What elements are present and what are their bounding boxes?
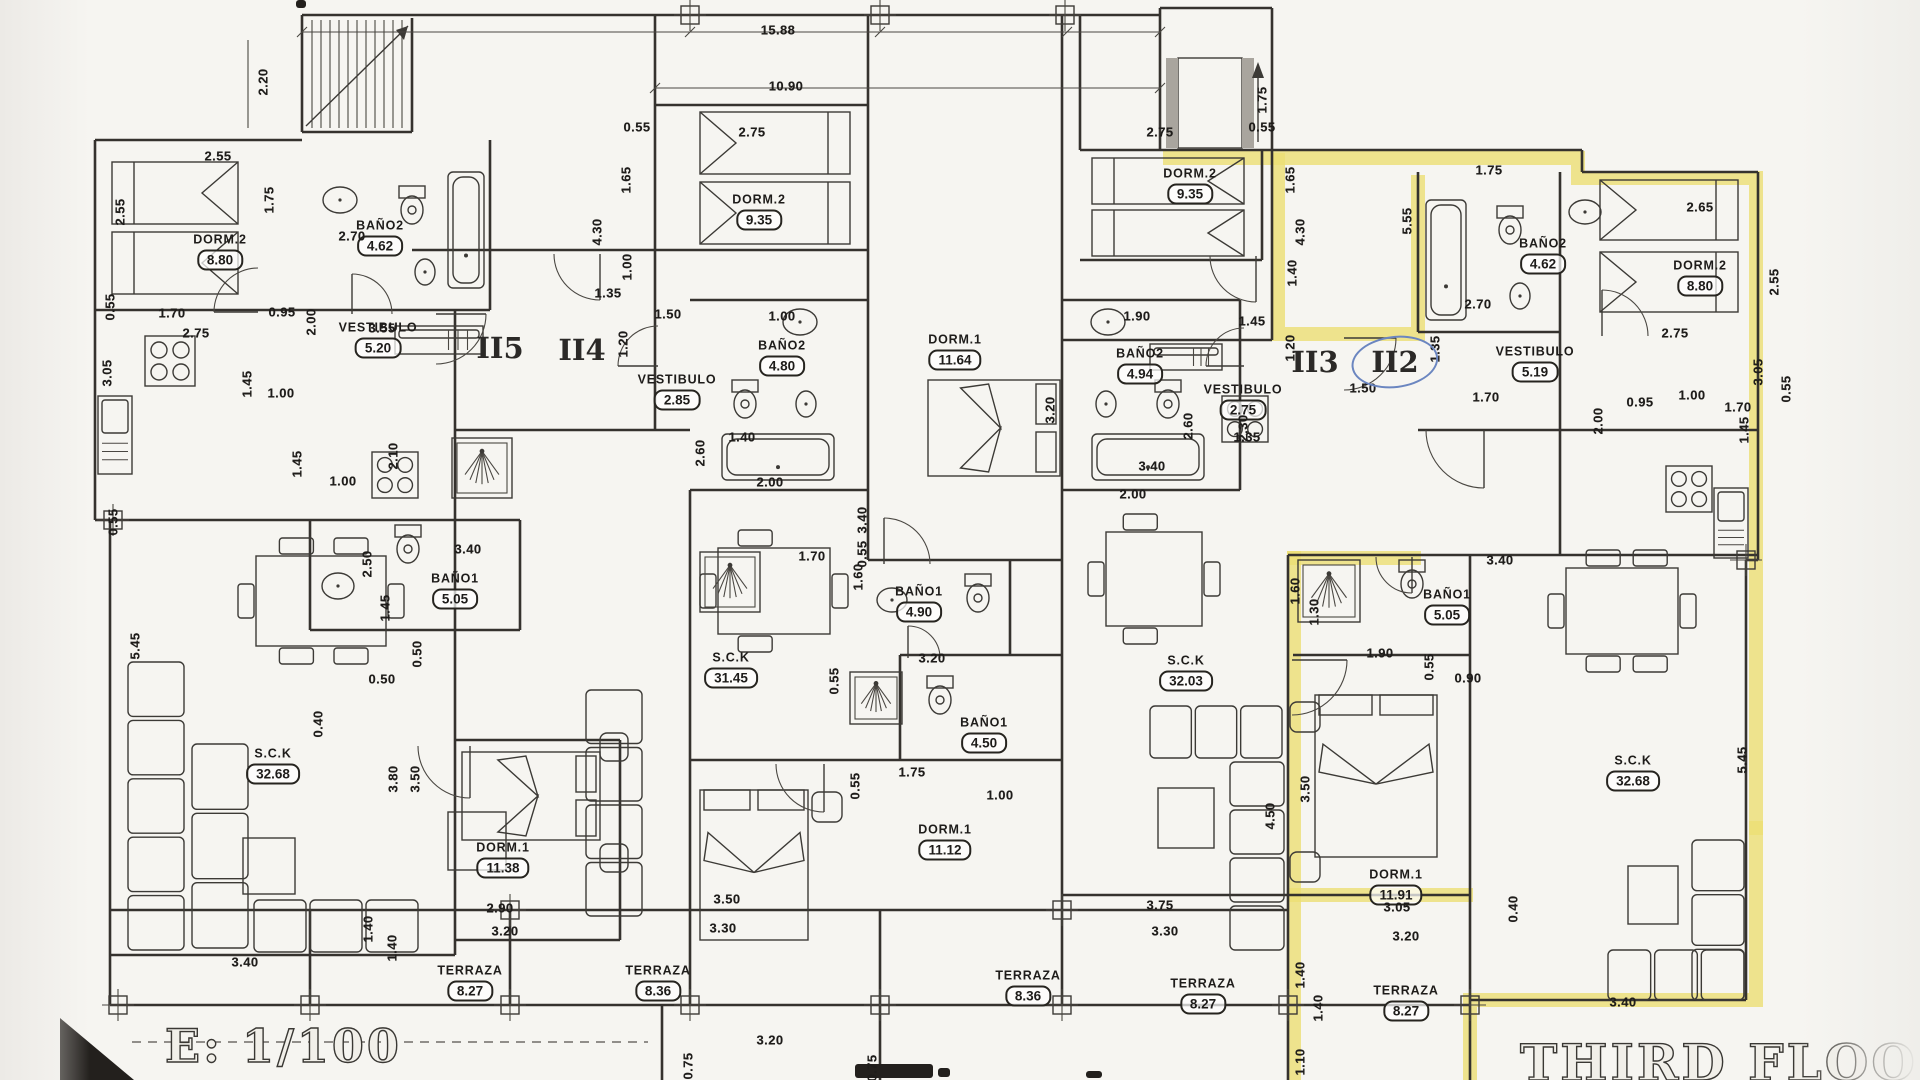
chair	[1548, 594, 1564, 628]
scan-artifact	[296, 0, 306, 8]
bathtub-drain	[464, 254, 468, 258]
scan-artifact	[855, 1064, 933, 1078]
bed-pillow	[1380, 695, 1433, 715]
stove-burner	[1692, 492, 1707, 507]
door-arc	[352, 274, 392, 314]
chair	[279, 538, 313, 554]
sofa-cushion	[586, 805, 642, 859]
chair	[700, 574, 716, 608]
furniture-layer	[98, 20, 1748, 1000]
stove-burner	[151, 364, 167, 380]
stove-burner	[1672, 472, 1687, 487]
elevator-jamb	[1242, 58, 1254, 148]
bathtub-inner	[453, 177, 479, 283]
walls-layer	[95, 8, 1758, 1080]
sink-basin	[1718, 492, 1744, 521]
bed-fan	[754, 833, 804, 873]
bed-pillow	[704, 790, 750, 810]
bed-pillow	[758, 790, 804, 810]
single-bed	[112, 162, 238, 224]
bed-fold	[700, 112, 736, 174]
bathtub	[1092, 434, 1204, 480]
bed-fan	[1319, 744, 1376, 784]
bed-fold	[1600, 180, 1636, 240]
chair	[1680, 594, 1696, 628]
bathtub-drain	[1146, 465, 1150, 469]
elevator-jamb	[1166, 58, 1178, 148]
bathtub	[722, 434, 834, 480]
stove-burner	[378, 458, 393, 473]
sofa-cushion	[1230, 810, 1284, 854]
chair	[238, 584, 254, 618]
drain	[804, 402, 807, 405]
stove	[1222, 396, 1268, 442]
stove-burner	[398, 458, 413, 473]
drain	[338, 198, 341, 201]
toilet-detail	[404, 545, 412, 553]
door-arc	[908, 626, 940, 658]
bed-fold	[1208, 210, 1244, 256]
sofa-cushion	[1150, 706, 1191, 758]
drain	[1106, 320, 1109, 323]
sofa-cushion	[1608, 950, 1651, 1000]
unit-highlight	[1278, 160, 1418, 334]
chair	[334, 648, 368, 664]
stove-burner	[378, 478, 393, 493]
chair	[388, 584, 404, 618]
elevator-cab	[1178, 58, 1242, 148]
unit-highlight	[1170, 158, 1756, 828]
bed-fold	[1600, 252, 1636, 312]
chair	[738, 636, 772, 652]
sofa-cushion	[586, 690, 642, 744]
shower-head	[1327, 571, 1332, 576]
door-arc	[1206, 328, 1244, 366]
double-bed	[1315, 695, 1437, 857]
chair	[1586, 656, 1620, 672]
bathtub-drain	[1444, 284, 1448, 288]
door-arc	[1210, 256, 1256, 302]
chair	[1123, 514, 1157, 530]
sofa-cushion	[128, 896, 184, 950]
shower-head	[728, 563, 733, 568]
toilet-detail	[408, 206, 416, 214]
stove-burner	[1672, 492, 1687, 507]
toilet-bowl	[397, 535, 419, 563]
single-bed	[1600, 252, 1738, 312]
coffee-table	[243, 838, 295, 894]
stove	[372, 452, 418, 498]
toilet-detail	[1164, 400, 1172, 408]
stove-burner	[173, 364, 189, 380]
highlight-layer	[1170, 158, 1756, 1078]
sofa-cushion	[128, 837, 184, 891]
chair	[279, 648, 313, 664]
door-arc	[1344, 338, 1396, 390]
sofa-cushion	[1230, 762, 1284, 806]
sink-basin	[102, 400, 128, 433]
chair	[1088, 562, 1104, 596]
double-bed	[462, 752, 600, 840]
stove	[1666, 466, 1712, 512]
armchair	[448, 812, 506, 870]
toilet-bowl	[734, 390, 756, 418]
sofa-cushion	[128, 779, 184, 833]
sofa-cushion	[1195, 706, 1236, 758]
toilet-detail	[936, 696, 944, 704]
single-bed	[1600, 180, 1738, 240]
bed-fold	[202, 232, 238, 294]
bathtub-inner	[1097, 439, 1199, 475]
toilet-bowl	[967, 584, 989, 612]
toilet-bowl	[1157, 390, 1179, 418]
chair	[1123, 628, 1157, 644]
bed-fan	[704, 833, 754, 873]
drain	[798, 320, 801, 323]
bed-pillow	[1036, 432, 1056, 472]
toilet-bowl	[1499, 216, 1521, 244]
sofa-cushion	[1692, 949, 1744, 1000]
stove-burner	[173, 342, 189, 358]
chair	[832, 574, 848, 608]
dining-table	[256, 556, 386, 646]
sofa-cushion	[1701, 950, 1744, 1000]
floor-plan-page: E: 1/100 THIRD FLOOR DORM.28.80BAÑO24.62…	[0, 0, 1920, 1080]
sofa-cushion	[366, 900, 418, 952]
door-arc	[554, 254, 600, 300]
coffee-table	[1628, 866, 1678, 924]
single-bed	[1092, 210, 1244, 256]
bed-fold	[700, 182, 736, 244]
double-bed	[700, 790, 808, 940]
sofa-cushion	[586, 863, 642, 917]
sofa-cushion	[192, 883, 248, 948]
bathtub	[1426, 200, 1466, 320]
drain	[1583, 210, 1586, 213]
toilet-detail	[1506, 226, 1514, 234]
sofa-cushion	[310, 900, 362, 952]
drain	[423, 270, 426, 273]
sofa-cushion	[128, 720, 184, 774]
door-arc	[436, 314, 486, 364]
shower-head	[480, 449, 485, 454]
toilet-detail	[974, 594, 982, 602]
sofa-cushion	[192, 813, 248, 878]
dining-table	[1106, 532, 1202, 626]
bed-fan	[961, 428, 1001, 472]
bed-fan	[498, 756, 538, 796]
bathtub-inner	[727, 439, 829, 475]
scan-artifact	[1086, 1071, 1102, 1078]
shower-head	[874, 681, 879, 686]
scan-artifact	[60, 1018, 134, 1080]
sofa-cushion	[1692, 895, 1744, 946]
stove-burner	[151, 342, 167, 358]
door-arc	[214, 268, 258, 312]
stove	[145, 336, 195, 386]
sofa-cushion	[1655, 950, 1698, 1000]
single-bed	[112, 232, 238, 294]
stove-burner	[1692, 472, 1707, 487]
door-arc	[618, 326, 658, 366]
floor-plan-drawing: E: 1/100 THIRD FLOOR	[0, 0, 1920, 1080]
armchair	[1158, 788, 1214, 848]
bed-fan	[1376, 744, 1433, 784]
chair	[334, 538, 368, 554]
sofa-cushion	[1241, 706, 1282, 758]
bed-fold	[202, 162, 238, 224]
stove-burner	[1248, 402, 1263, 417]
chair	[1586, 550, 1620, 566]
door-arc	[1426, 430, 1484, 488]
door-arc	[884, 518, 930, 564]
kitchen-sink	[1714, 488, 1748, 558]
bed-pillow	[1036, 384, 1056, 424]
sofa-cushion	[192, 744, 248, 809]
sofa-cushion	[128, 662, 184, 716]
drain	[1104, 402, 1107, 405]
bed-pillow	[1319, 695, 1372, 715]
chair	[1633, 656, 1667, 672]
bed-fan	[498, 796, 538, 836]
sofa-cushion	[254, 900, 306, 952]
sofa-cushion	[1230, 906, 1284, 950]
sofa-cushion	[1692, 840, 1744, 891]
stove-burner	[1248, 422, 1263, 437]
bathtub-drain	[776, 465, 780, 469]
bed-fan	[961, 384, 1001, 428]
scan-artifact	[938, 1068, 950, 1077]
drain	[1518, 294, 1521, 297]
toilet-detail	[741, 400, 749, 408]
double-bed	[928, 380, 1060, 476]
nightstand	[812, 792, 842, 822]
toilet-bowl	[401, 196, 423, 224]
stove-burner	[398, 478, 413, 493]
dining-table	[1566, 568, 1678, 654]
chair	[1633, 550, 1667, 566]
floor-title: THIRD FLOOR	[1520, 1033, 1920, 1080]
toilet-bowl	[929, 686, 951, 714]
chair	[1204, 562, 1220, 596]
bathtub-inner	[1431, 205, 1461, 315]
scale-label: E: 1/100	[165, 1019, 402, 1073]
drain	[336, 584, 339, 587]
door-arc	[1602, 290, 1648, 336]
kitchen-sink	[98, 396, 132, 474]
chair	[738, 530, 772, 546]
door-arc	[776, 764, 824, 812]
drain	[890, 598, 893, 601]
